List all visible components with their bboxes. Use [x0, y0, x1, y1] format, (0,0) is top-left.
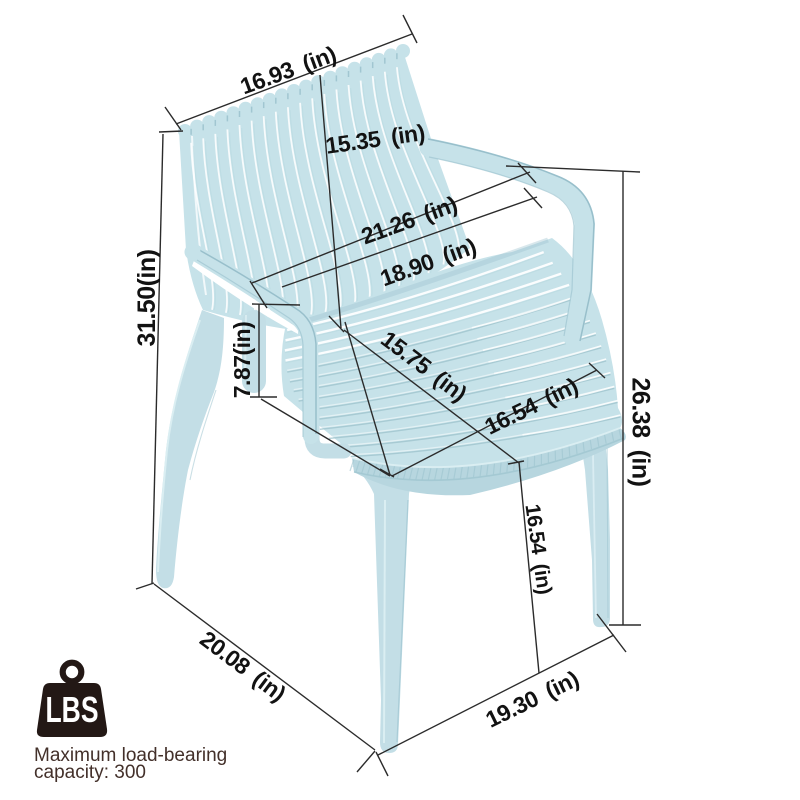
svg-text:26.38 (in): 26.38 (in)	[626, 378, 654, 487]
svg-text:7.87(in): 7.87(in)	[229, 322, 255, 399]
svg-text:capacity: 300: capacity: 300	[34, 762, 146, 783]
svg-text:LBS: LBS	[46, 689, 99, 730]
svg-text:31.50(in): 31.50(in)	[133, 249, 161, 346]
